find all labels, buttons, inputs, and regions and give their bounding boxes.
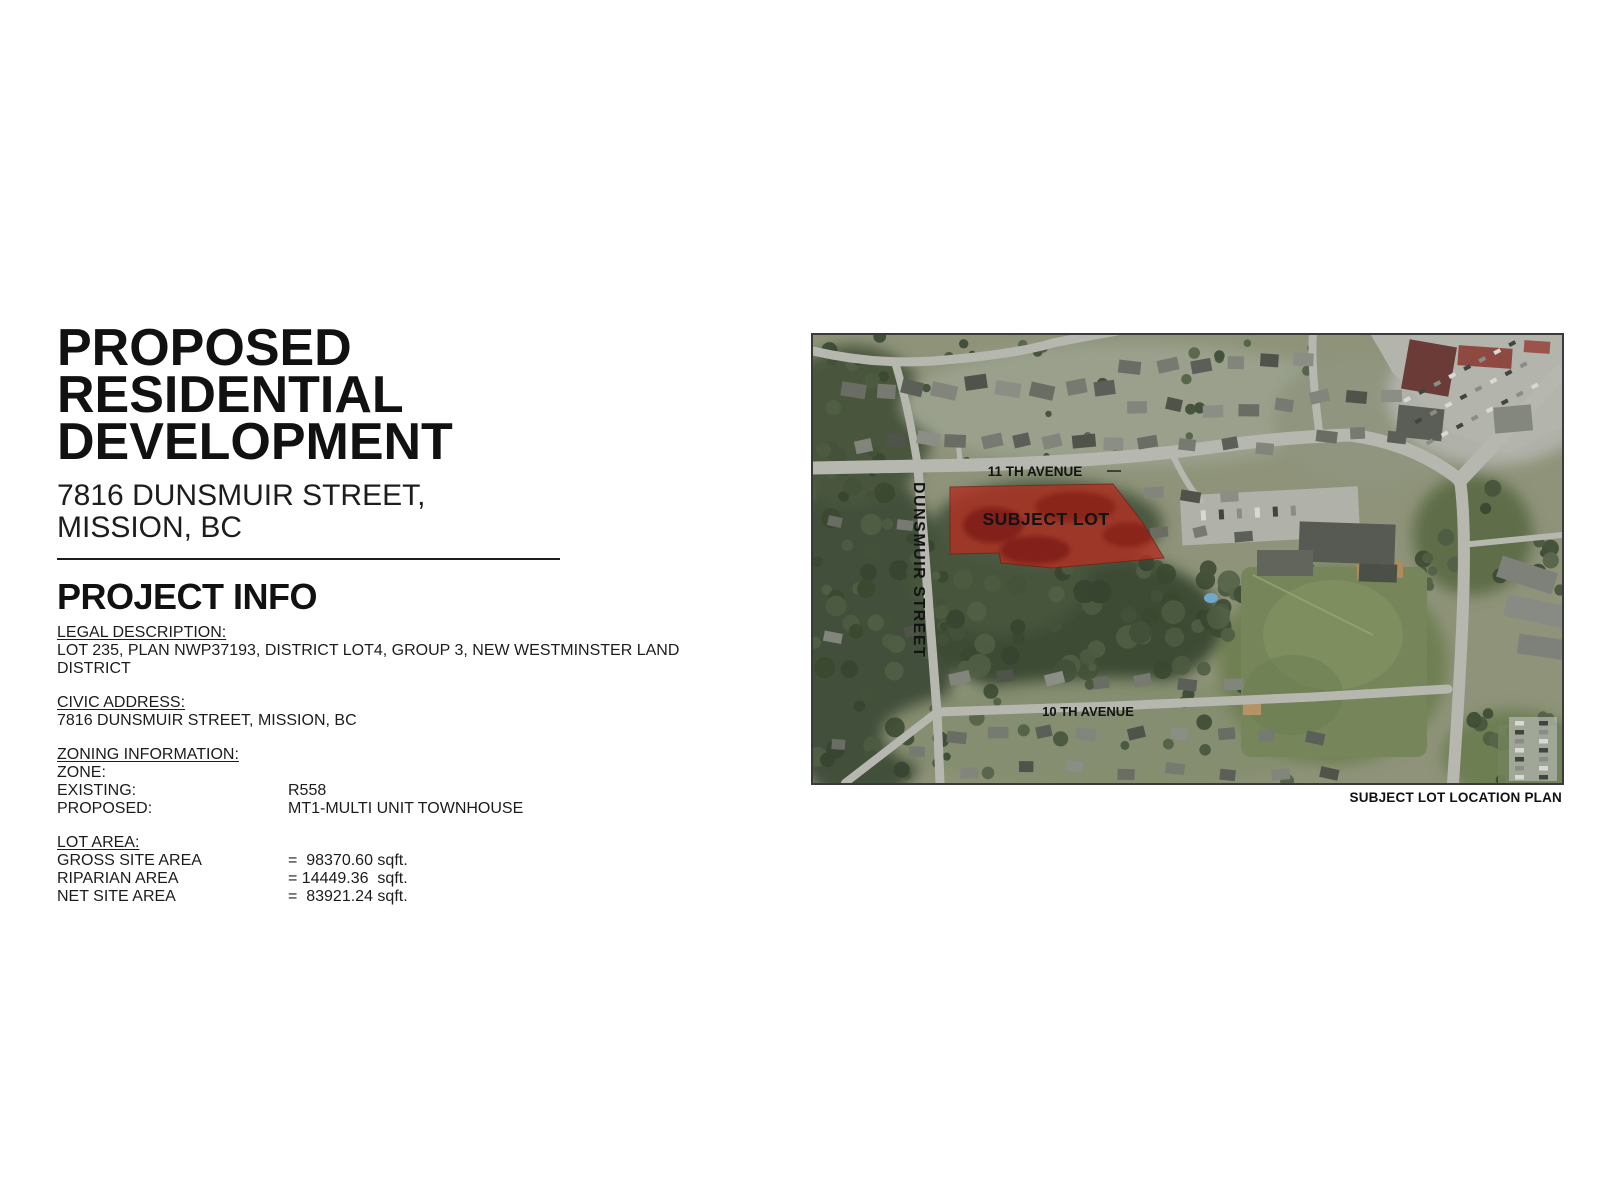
- house-roof: [1220, 491, 1239, 503]
- tree: [959, 339, 968, 348]
- tree: [1483, 708, 1494, 719]
- house-roof: [988, 727, 1009, 739]
- zoning-row: ZONE:: [57, 764, 747, 782]
- house-roof: [908, 746, 924, 757]
- house-roof: [1093, 676, 1110, 690]
- sand-patch: [1243, 703, 1261, 715]
- zoning-row: EXISTING: R558: [57, 782, 747, 800]
- car: [1539, 739, 1548, 744]
- car: [1539, 757, 1548, 762]
- tree: [1543, 552, 1559, 568]
- tree: [888, 636, 906, 654]
- tree: [826, 596, 847, 617]
- civic-address-value: 7816 DUNSMUIR STREET, MISSION, BC: [57, 712, 747, 730]
- house-roof: [946, 731, 967, 745]
- tree: [854, 701, 865, 712]
- tree: [1484, 480, 1501, 497]
- house-roof: [1165, 762, 1185, 775]
- tree: [1153, 661, 1172, 680]
- house-roof: [1066, 760, 1084, 773]
- tree: [849, 624, 864, 639]
- school-building-wing: [1257, 550, 1313, 576]
- house-roof: [1127, 401, 1147, 414]
- tree: [967, 602, 987, 622]
- tree: [932, 571, 940, 579]
- tree: [1080, 649, 1096, 665]
- house-roof: [1072, 434, 1096, 449]
- tree: [984, 575, 1001, 592]
- commercial-shop-small: [1524, 340, 1551, 354]
- car: [1539, 721, 1548, 726]
- house-roof: [1219, 769, 1236, 782]
- project-info-heading: PROJECT INFO: [57, 578, 747, 616]
- location-plan-map: 11 TH AVENUE DUNSMUIR STREET 10 TH AVENU…: [811, 333, 1564, 785]
- house-roof: [1144, 487, 1164, 499]
- tree: [975, 634, 996, 655]
- tree: [1214, 350, 1225, 361]
- car: [1515, 748, 1524, 753]
- car: [1515, 775, 1524, 780]
- house-roof: [1271, 768, 1290, 780]
- zoning-row-name: PROPOSED:: [57, 800, 288, 818]
- house-roof: [1019, 761, 1033, 772]
- zoning-row-value: MT1-MULTI UNIT TOWNHOUSE: [288, 800, 523, 818]
- car: [1219, 509, 1225, 519]
- tree: [866, 491, 876, 501]
- tree: [993, 698, 1001, 706]
- tree: [1221, 628, 1235, 642]
- civic-address-label: CIVIC ADDRESS:: [57, 694, 747, 712]
- tree: [841, 539, 853, 551]
- tree: [943, 753, 951, 761]
- street-label-dunsmuir-street: DUNSMUIR STREET: [910, 482, 927, 658]
- house-roof: [1177, 678, 1197, 692]
- school-field: [1241, 567, 1427, 757]
- tree: [889, 560, 909, 580]
- tree: [982, 767, 995, 780]
- lot-area-row-name: RIPARIAN AREA: [57, 870, 288, 888]
- commercial-shops-red: [1457, 345, 1512, 369]
- car: [1237, 508, 1243, 518]
- house-roof: [1238, 404, 1259, 416]
- car: [1539, 766, 1548, 771]
- tree: [1156, 564, 1176, 584]
- civic-address-section: CIVIC ADDRESS: 7816 DUNSMUIR STREET, MIS…: [57, 694, 747, 730]
- house-roof: [1258, 729, 1274, 741]
- tree: [882, 518, 893, 529]
- house-roof: [1381, 390, 1402, 402]
- house-roof: [996, 669, 1013, 682]
- school-building-annex: [1359, 563, 1398, 582]
- house-roof: [1224, 678, 1244, 690]
- house-roof: [1234, 531, 1253, 543]
- tree: [1186, 432, 1194, 440]
- street-label-10th-avenue: 10 TH AVENUE: [1042, 704, 1134, 719]
- project-info-body: LEGAL DESCRIPTION: LOT 235, PLAN NWP3719…: [57, 624, 747, 906]
- legal-description-label: LEGAL DESCRIPTION:: [57, 624, 747, 642]
- house-roof: [1117, 769, 1134, 780]
- tree: [1010, 619, 1025, 634]
- page-title-line-1: PROPOSED: [57, 325, 747, 372]
- street-label-11th-avenue: 11 TH AVENUE: [988, 464, 1083, 479]
- car: [1255, 507, 1261, 517]
- zoning-row: PROPOSED: MT1-MULTI UNIT TOWNHOUSE: [57, 800, 747, 818]
- tree: [954, 570, 973, 589]
- tree: [1120, 741, 1129, 750]
- swimming-pool: [1204, 593, 1218, 603]
- tree: [1001, 646, 1020, 665]
- tree: [814, 657, 835, 678]
- house-roof: [1093, 380, 1115, 397]
- lot-area-row-value: = 83921.24 sqft.: [288, 888, 408, 906]
- house-roof: [877, 384, 896, 399]
- tree: [900, 579, 911, 590]
- lot-area-row-value: = 14449.36 sqft.: [288, 870, 408, 888]
- car: [1539, 730, 1548, 735]
- project-text-column: PROPOSED RESIDENTIAL DEVELOPMENT 7816 DU…: [57, 325, 747, 922]
- house-roof: [1346, 390, 1368, 404]
- zoning-row-name: EXISTING:: [57, 782, 288, 800]
- tree: [1199, 744, 1211, 756]
- house-roof: [1218, 727, 1236, 740]
- car: [1515, 721, 1524, 726]
- page-title-line-2: RESIDENTIAL: [57, 372, 747, 419]
- tree: [1165, 628, 1184, 647]
- car: [1201, 510, 1207, 520]
- tree: [874, 483, 895, 504]
- car: [1273, 506, 1279, 516]
- tree: [1049, 619, 1062, 632]
- tree: [1045, 411, 1051, 417]
- tree: [826, 400, 841, 415]
- tree: [1088, 663, 1096, 671]
- car: [1515, 739, 1524, 744]
- tree: [1467, 712, 1481, 726]
- house-roof: [1255, 442, 1274, 455]
- house-roof: [831, 739, 845, 750]
- tree: [934, 605, 948, 619]
- tree: [1207, 606, 1230, 629]
- tree: [1129, 621, 1151, 643]
- tree: [1188, 347, 1200, 359]
- house-roof: [1260, 353, 1279, 367]
- tree: [868, 615, 884, 631]
- legal-description-section: LEGAL DESCRIPTION: LOT 235, PLAN NWP3719…: [57, 624, 747, 678]
- subject-lot-label: SUBJECT LOT: [982, 509, 1109, 529]
- tree: [1196, 570, 1215, 589]
- lot-area-row: NET SITE AREA = 83921.24 sqft.: [57, 888, 747, 906]
- project-address-underline: 7816 DUNSMUIR STREET, MISSION, BC: [57, 480, 560, 560]
- zoning-row-name: ZONE:: [57, 764, 288, 782]
- tree: [1088, 580, 1112, 604]
- house-roof: [1315, 430, 1337, 444]
- house-roof: [1170, 727, 1188, 741]
- house-roof: [944, 434, 966, 448]
- tree: [1428, 566, 1437, 575]
- tree: [1053, 731, 1068, 746]
- car: [1515, 757, 1524, 762]
- tree: [1162, 600, 1186, 624]
- tree: [1244, 339, 1252, 347]
- lot-area-section: LOT AREA: GROSS SITE AREA = 98370.60 sqf…: [57, 834, 747, 906]
- tree: [1197, 662, 1211, 676]
- zoning-row-value: R558: [288, 782, 326, 800]
- car: [1539, 775, 1548, 780]
- house-roof: [960, 767, 978, 779]
- tree: [844, 478, 862, 496]
- tree: [863, 542, 879, 558]
- tree: [1007, 575, 1026, 594]
- tree: [1121, 607, 1137, 623]
- zoning-section: ZONING INFORMATION: ZONE: EXISTING: R558…: [57, 746, 747, 818]
- tree: [1049, 586, 1065, 602]
- legal-description-value: LOT 235, PLAN NWP37193, DISTRICT LOT4, G…: [57, 642, 747, 678]
- tree: [859, 686, 875, 702]
- lot-area-row-name: GROSS SITE AREA: [57, 852, 288, 870]
- tree: [1438, 529, 1455, 546]
- zoning-label: ZONING INFORMATION:: [57, 746, 747, 764]
- house-roof: [1118, 360, 1142, 375]
- house-roof: [1203, 405, 1224, 418]
- house-roof: [1228, 356, 1245, 369]
- tree: [1163, 739, 1174, 750]
- project-address: 7816 DUNSMUIR STREET, MISSION, BC: [57, 480, 560, 544]
- house-roof: [1387, 431, 1407, 445]
- car: [1291, 506, 1297, 516]
- tree: [937, 634, 949, 646]
- map-caption: SUBJECT LOT LOCATION PLAN: [811, 790, 1562, 805]
- house-roof: [1293, 352, 1314, 366]
- tree: [983, 684, 998, 699]
- house-roof: [1178, 438, 1196, 451]
- tree: [1480, 503, 1491, 514]
- tree: [1422, 552, 1433, 563]
- aerial-map-image: 11 TH AVENUE DUNSMUIR STREET 10 TH AVENU…: [813, 335, 1562, 783]
- car: [1515, 730, 1524, 735]
- tree: [939, 622, 948, 631]
- tree: [860, 564, 877, 581]
- house-roof: [1150, 526, 1169, 538]
- car: [1515, 766, 1524, 771]
- tree: [1181, 374, 1191, 384]
- tree: [1151, 590, 1163, 602]
- title-sheet-page: PROPOSED RESIDENTIAL DEVELOPMENT 7816 DU…: [0, 0, 1600, 1200]
- tree: [841, 660, 858, 677]
- tree: [1185, 404, 1196, 415]
- lot-area-row-value: = 98370.60 sqft.: [288, 852, 408, 870]
- tree: [860, 514, 881, 535]
- tree: [1196, 714, 1212, 730]
- commercial-building-maroon: [1401, 339, 1457, 397]
- lot-area-row: GROSS SITE AREA = 98370.60 sqft.: [57, 852, 747, 870]
- tree: [946, 610, 965, 629]
- page-title-line-3: DEVELOPMENT: [57, 419, 747, 466]
- commercial-building-gray: [1493, 404, 1533, 433]
- tree: [885, 662, 904, 681]
- car: [1539, 748, 1548, 753]
- tree: [1018, 724, 1030, 736]
- lot-area-label: LOT AREA:: [57, 834, 747, 852]
- house-roof: [1103, 437, 1123, 451]
- tree: [857, 580, 875, 598]
- house-roof: [1350, 427, 1365, 439]
- lot-area-row-name: NET SITE AREA: [57, 888, 288, 906]
- house-roof: [886, 433, 906, 448]
- tree: [894, 762, 910, 778]
- lot-area-row: RIPARIAN AREA = 14449.36 sqft.: [57, 870, 747, 888]
- tree: [816, 442, 831, 457]
- tree: [1172, 656, 1191, 675]
